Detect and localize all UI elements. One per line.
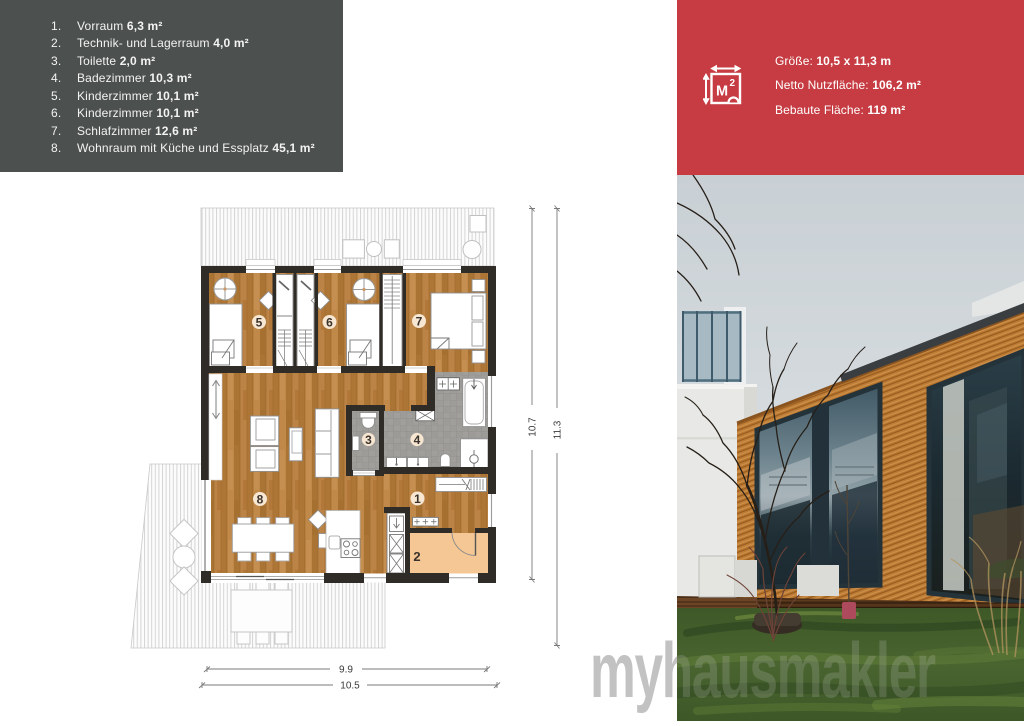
svg-text:1: 1	[414, 492, 421, 506]
svg-text:5: 5	[256, 315, 263, 329]
svg-text:10.5: 10.5	[340, 681, 360, 692]
svg-text:10.7: 10.7	[528, 417, 539, 437]
svg-text:7: 7	[416, 314, 423, 328]
svg-text:6: 6	[326, 315, 333, 329]
svg-text:11.3: 11.3	[553, 420, 564, 439]
svg-text:2: 2	[413, 549, 420, 564]
svg-text:8: 8	[257, 492, 264, 506]
svg-text:4: 4	[414, 433, 421, 447]
svg-text:9.9: 9.9	[339, 665, 353, 676]
svg-text:3: 3	[365, 433, 372, 447]
